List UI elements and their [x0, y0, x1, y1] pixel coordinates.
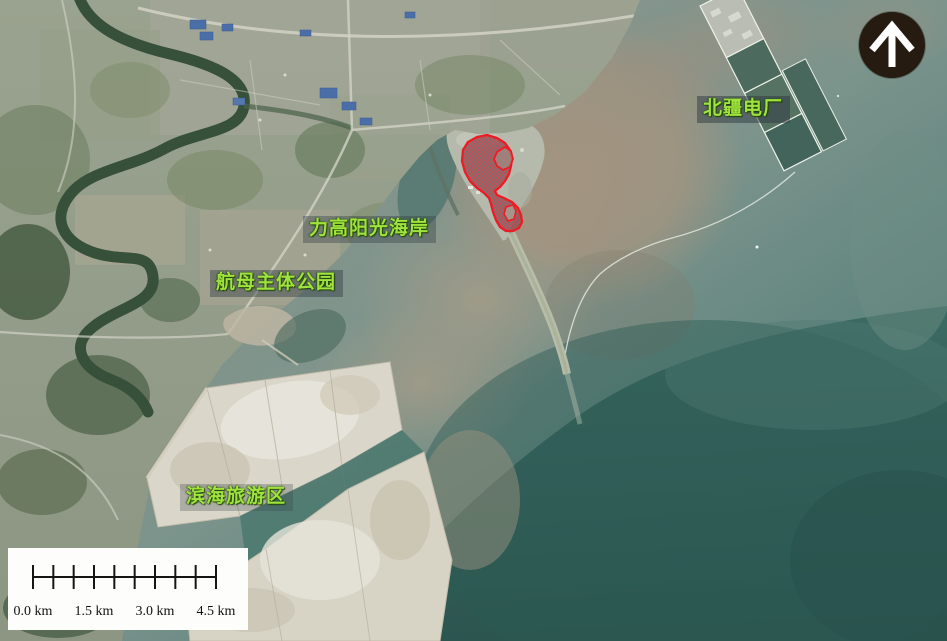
region-label-ligao: 力高阳光海岸 — [303, 216, 436, 243]
region-label-beijiang: 北疆电厂 — [697, 96, 790, 123]
satellite-map-art — [0, 0, 947, 641]
region-label-hangmu: 航母主体公园 — [210, 270, 343, 297]
region-label-binhai: 滨海旅游区 — [180, 484, 293, 511]
scale-label-0: 0.0 km — [14, 604, 53, 620]
scale-label-1: 1.5 km — [75, 604, 114, 620]
scale-label-3: 4.5 km — [197, 604, 236, 620]
satellite-map-figure: 北疆电厂 力高阳光海岸 航母主体公园 滨海旅游区 0.0 km 1.5 km 3… — [0, 0, 947, 641]
scale-bar-ticks — [8, 554, 248, 600]
north-arrow-icon — [859, 12, 925, 78]
scale-label-2: 3.0 km — [136, 604, 175, 620]
scale-bar: 0.0 km 1.5 km 3.0 km 4.5 km — [8, 548, 248, 630]
